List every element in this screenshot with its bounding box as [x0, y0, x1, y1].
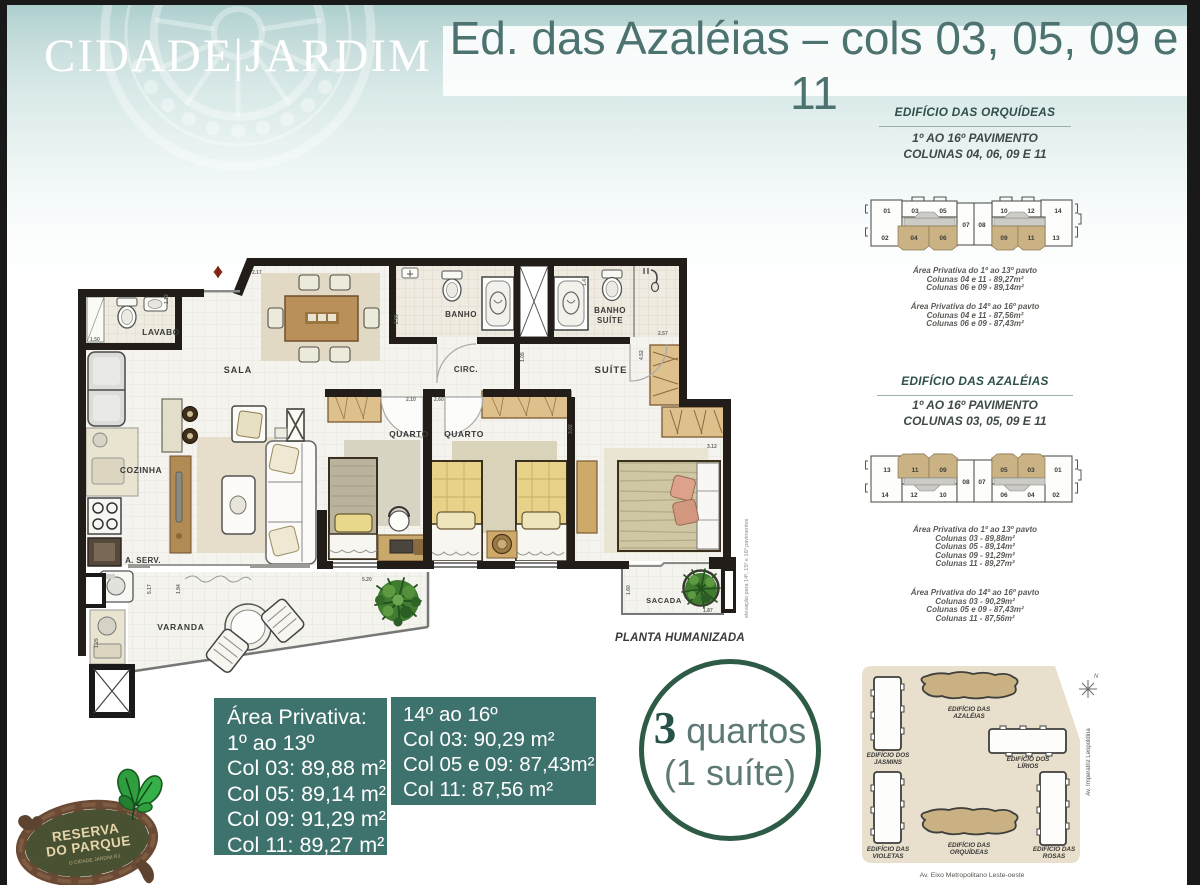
- svg-text:04: 04: [910, 235, 918, 242]
- svg-text:03: 03: [911, 208, 919, 215]
- svg-text:N: N: [1094, 674, 1099, 680]
- svg-text:EDIFÍCIO DAS: EDIFÍCIO DAS: [867, 844, 910, 853]
- svg-text:BANHO: BANHO: [594, 306, 626, 315]
- svg-text:JASMINS: JASMINS: [874, 759, 903, 766]
- svg-text:BANHO: BANHO: [445, 310, 477, 319]
- svg-text:2.10: 2.10: [406, 397, 416, 403]
- svg-text:ROSAS: ROSAS: [1043, 853, 1066, 860]
- svg-text:3.02: 3.02: [568, 424, 574, 434]
- svg-text:SALA: SALA: [224, 365, 253, 375]
- svg-text:EDIFÍCIO DOS: EDIFÍCIO DOS: [1007, 754, 1050, 763]
- svg-text:07: 07: [978, 479, 986, 486]
- svg-text:01: 01: [1054, 467, 1062, 474]
- svg-text:04: 04: [1027, 492, 1035, 499]
- svg-text:05: 05: [1000, 467, 1008, 474]
- svg-text:SUÍTE: SUÍTE: [595, 365, 628, 376]
- svg-text:1.60: 1.60: [626, 585, 632, 595]
- svg-text:SACADA: SACADA: [646, 596, 682, 605]
- svg-text:EDIFÍCIO DAS: EDIFÍCIO DAS: [948, 840, 991, 849]
- svg-text:14: 14: [1054, 208, 1062, 215]
- svg-text:1.87: 1.87: [703, 608, 713, 614]
- svg-text:5.17: 5.17: [147, 584, 153, 594]
- svg-text:1.25: 1.25: [94, 638, 100, 648]
- svg-text:Av. Eixo Metropolitano Leste-o: Av. Eixo Metropolitano Leste-oeste: [920, 872, 1025, 879]
- svg-text:1.94: 1.94: [176, 584, 182, 594]
- svg-text:02: 02: [1052, 492, 1060, 499]
- svg-text:14: 14: [881, 492, 889, 499]
- svg-text:11: 11: [1028, 235, 1035, 242]
- svg-text:1.47: 1.47: [582, 276, 588, 286]
- svg-text:03: 03: [1027, 467, 1035, 474]
- svg-text:CIRC.: CIRC.: [454, 365, 478, 374]
- svg-text:13: 13: [1052, 235, 1060, 242]
- svg-text:Av. Imperatriz Leopoldina: Av. Imperatriz Leopoldina: [1086, 728, 1092, 796]
- svg-text:elevação para 14º, 15º e 16º p: elevação para 14º, 15º e 16º pavimentos: [743, 518, 750, 618]
- svg-text:QUARTO: QUARTO: [389, 429, 429, 439]
- svg-text:09: 09: [1000, 235, 1008, 242]
- svg-text:EDIFÍCIO DAS: EDIFÍCIO DAS: [1033, 844, 1076, 853]
- svg-text:1.12: 1.12: [164, 294, 170, 304]
- svg-text:QUARTO: QUARTO: [444, 429, 484, 439]
- svg-text:12: 12: [1027, 208, 1035, 215]
- svg-text:1.05: 1.05: [520, 352, 526, 362]
- svg-text:13: 13: [883, 467, 891, 474]
- svg-text:01: 01: [883, 208, 891, 215]
- svg-text:08: 08: [962, 479, 970, 486]
- svg-text:A. SERV.: A. SERV.: [125, 556, 161, 565]
- svg-text:2.95: 2.95: [394, 314, 400, 324]
- svg-text:LÍRIOS: LÍRIOS: [1018, 761, 1040, 770]
- svg-text:1.50: 1.50: [90, 337, 100, 343]
- svg-text:4.52: 4.52: [639, 350, 645, 360]
- svg-text:VARANDA: VARANDA: [157, 622, 204, 632]
- svg-text:2.60: 2.60: [434, 397, 444, 403]
- svg-text:LAVABO: LAVABO: [142, 327, 180, 337]
- svg-text:12: 12: [910, 492, 918, 499]
- svg-text:EDIFÍCIO DOS: EDIFÍCIO DOS: [867, 750, 910, 759]
- svg-text:AZALÉIAS: AZALÉIAS: [952, 711, 985, 720]
- svg-text:2.57: 2.57: [658, 331, 668, 337]
- svg-text:5.20: 5.20: [362, 577, 372, 583]
- svg-text:10: 10: [939, 492, 947, 499]
- svg-text:VIOLETAS: VIOLETAS: [872, 853, 904, 860]
- svg-text:3.12: 3.12: [707, 444, 717, 450]
- svg-text:11: 11: [912, 467, 919, 474]
- svg-text:07: 07: [962, 222, 970, 229]
- svg-text:ORQUÍDEAS: ORQUÍDEAS: [950, 847, 989, 856]
- svg-text:10: 10: [1000, 208, 1008, 215]
- svg-text:08: 08: [978, 222, 986, 229]
- svg-text:09: 09: [939, 467, 947, 474]
- svg-text:06: 06: [939, 235, 947, 242]
- svg-text:02: 02: [881, 235, 889, 242]
- svg-text:06: 06: [1000, 492, 1008, 499]
- svg-text:SUÍTE: SUÍTE: [597, 316, 623, 325]
- svg-text:EDIFÍCIO DAS: EDIFÍCIO DAS: [948, 704, 991, 713]
- svg-text:2.17: 2.17: [252, 270, 262, 276]
- svg-text:COZINHA: COZINHA: [120, 465, 162, 475]
- svg-text:05: 05: [939, 208, 947, 215]
